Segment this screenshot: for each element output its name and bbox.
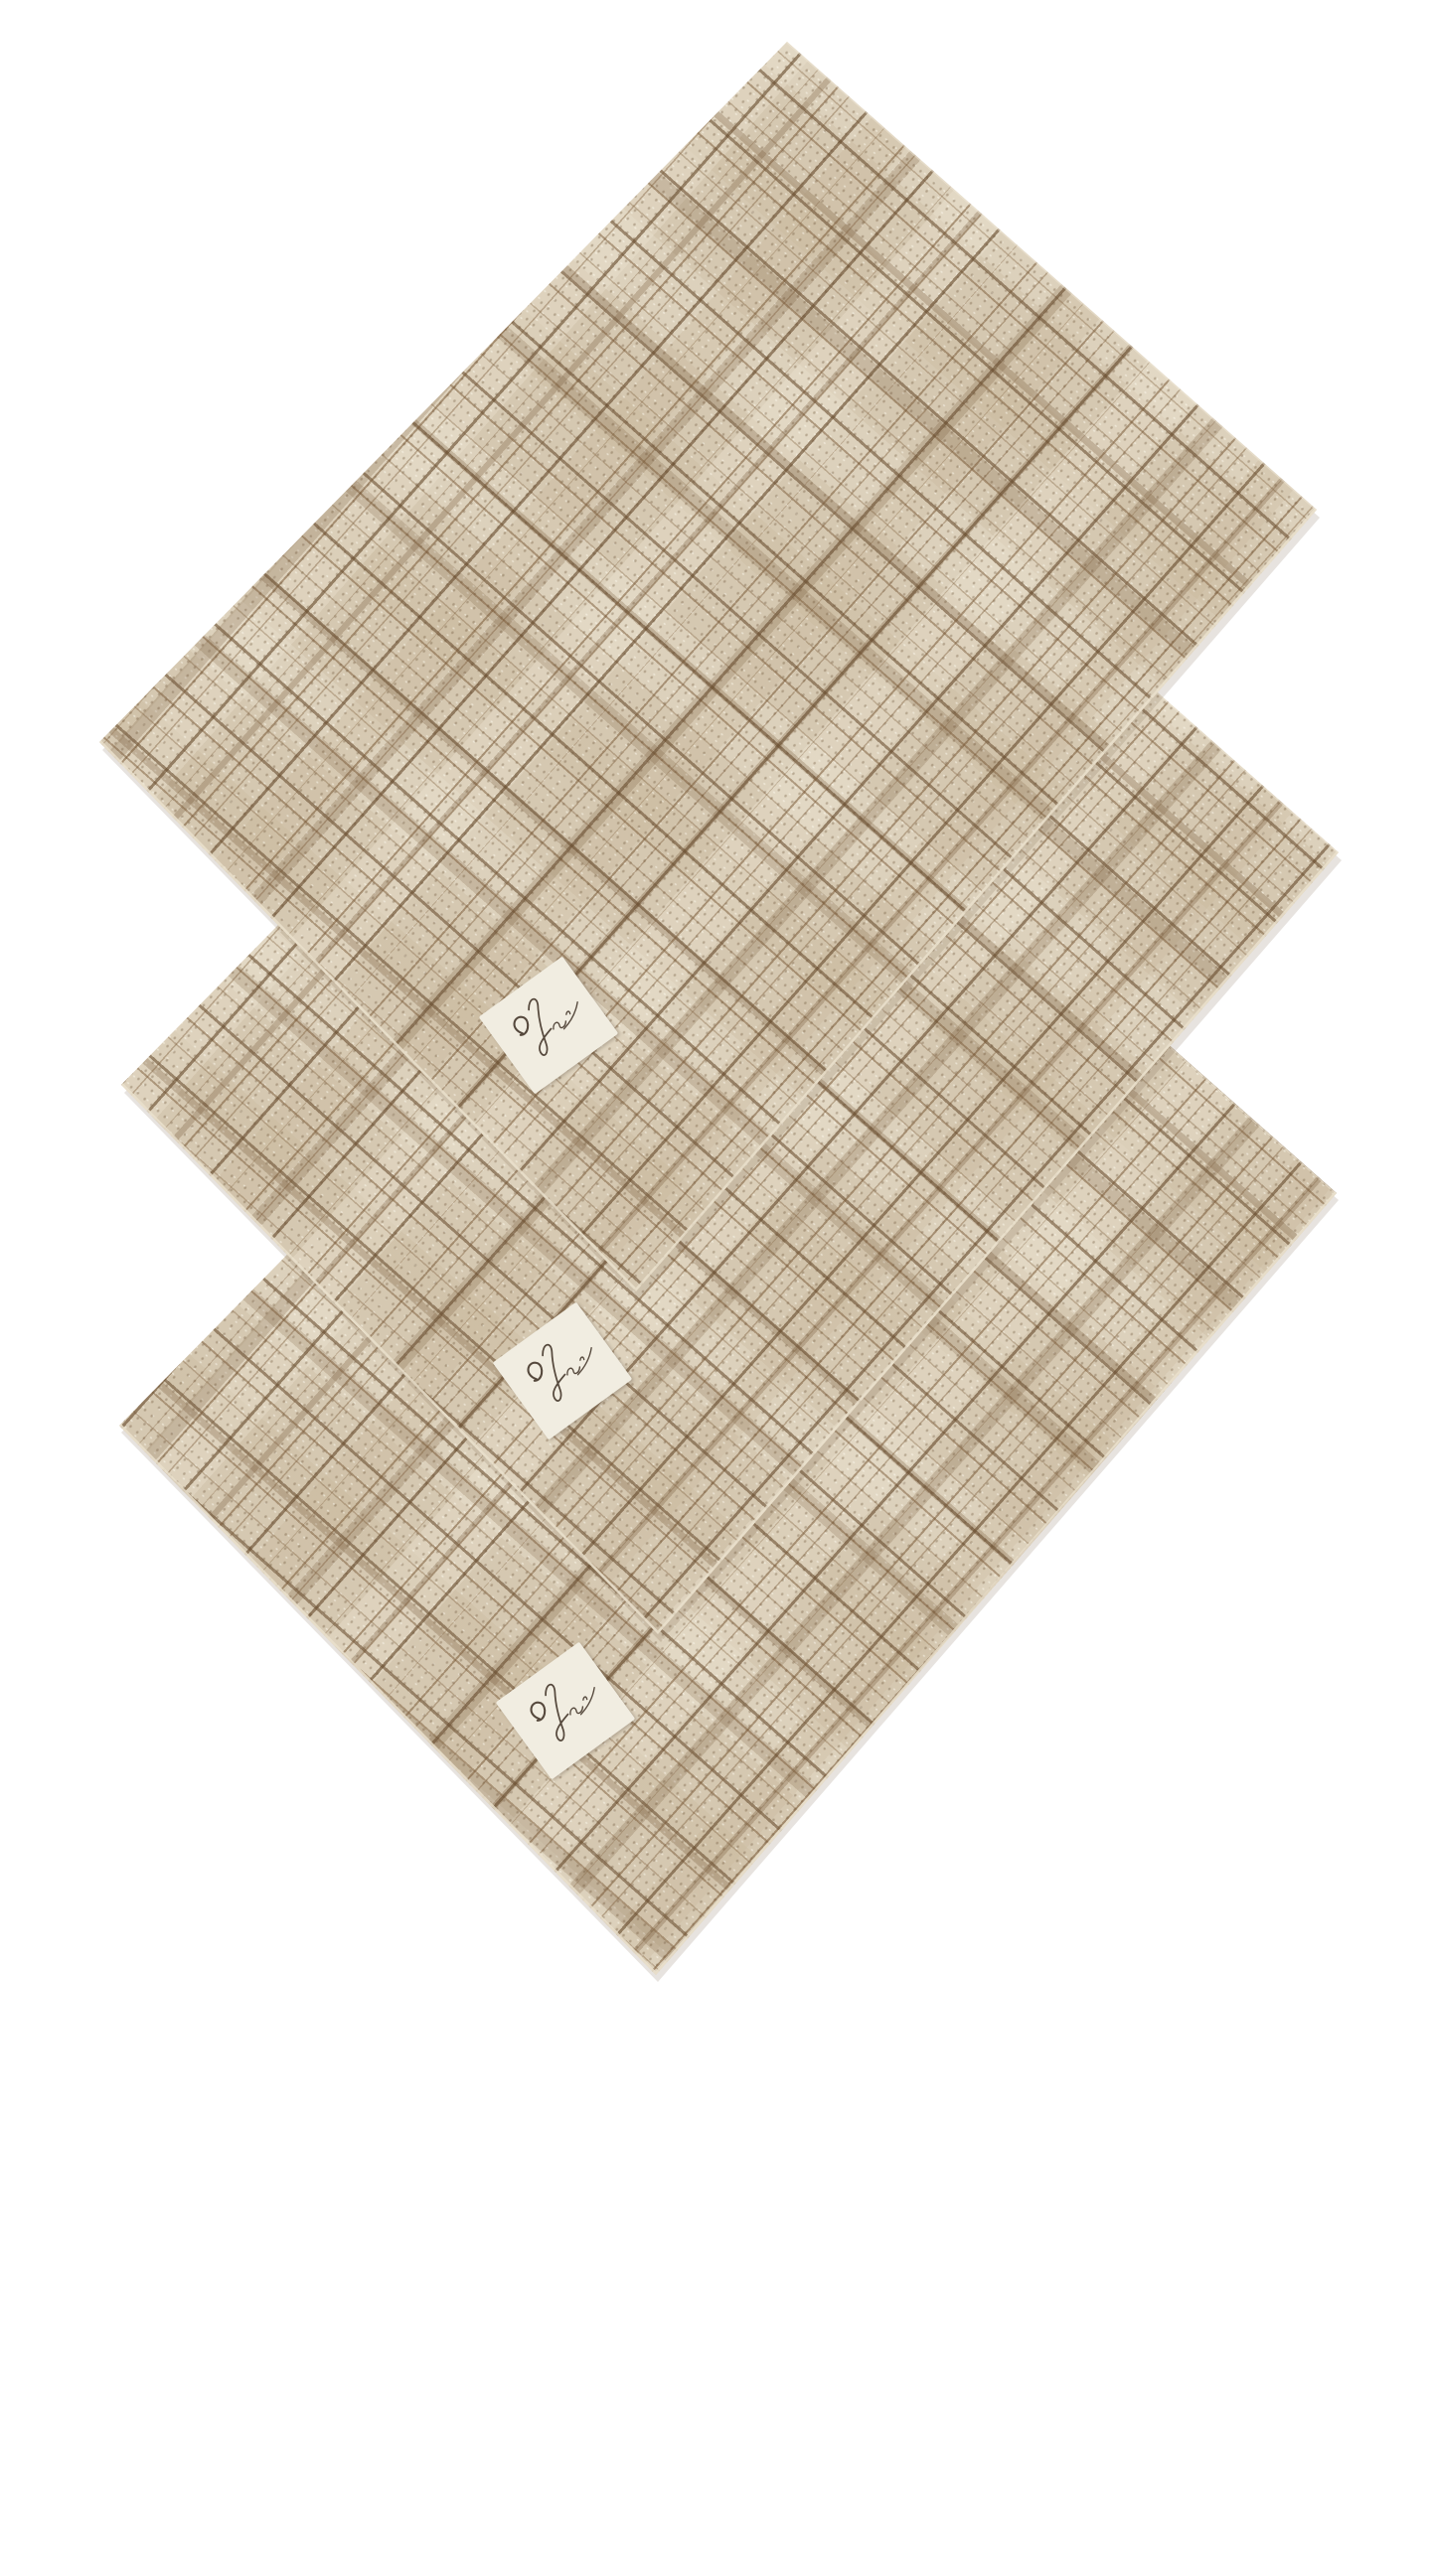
product-photo — [0, 0, 1431, 1989]
